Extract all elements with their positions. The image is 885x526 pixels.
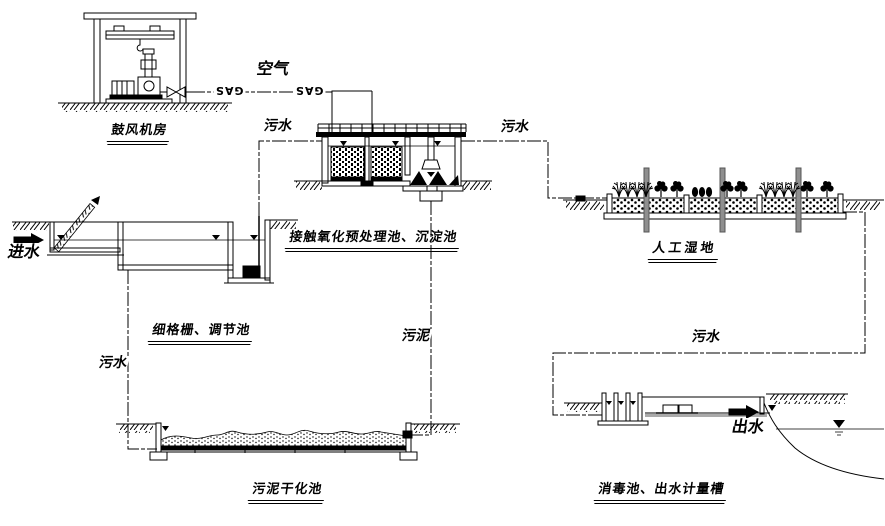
blower-room-drawing [58,13,232,112]
influent-label: 进水 [5,243,42,261]
sewage-label-to-contact-tank: 污水 [262,119,295,134]
sewage-label-to-disinfection: 污水 [690,330,723,345]
blower-room-title: 鼓风机房 [107,124,172,142]
disinfection-tank-drawing [564,393,884,479]
effluent-label: 出水 [729,418,766,436]
disinfection-title: 消毒池、出水计量槽 [594,483,729,501]
sewage-label-to-wetland: 污水 [499,120,532,135]
gas-label-1: GAS [213,85,245,96]
sludge-label: 污泥 [400,329,433,344]
pipe-lines [128,141,865,449]
process-flow-diagram: 空气 GAS GAS 污水 污水 污水 污水 污泥 进水 出水 鼓风机房 接触氧… [0,0,885,526]
sludge-drying-bed-drawing [116,423,460,460]
contact-oxidation-title: 接触氧化预处理池、沉淀池 [285,231,462,249]
screen-regulating-tank-drawing [12,196,298,283]
sewage-label-filtrate-return: 污水 [97,356,130,371]
sludge-drying-title: 污泥干化池 [248,483,327,501]
wetland-title: 人工湿地 [648,242,721,260]
constructed-wetland-drawing [563,168,884,232]
flow-diagram-canvas [0,0,885,526]
fine-screen-title: 细格栅、调节池 [148,324,255,342]
air-label: 空气 [254,60,291,78]
contact-oxidation-tank-drawing [294,124,492,201]
receiving-water-drawing [764,394,884,479]
gas-label-2: GAS [293,85,325,96]
